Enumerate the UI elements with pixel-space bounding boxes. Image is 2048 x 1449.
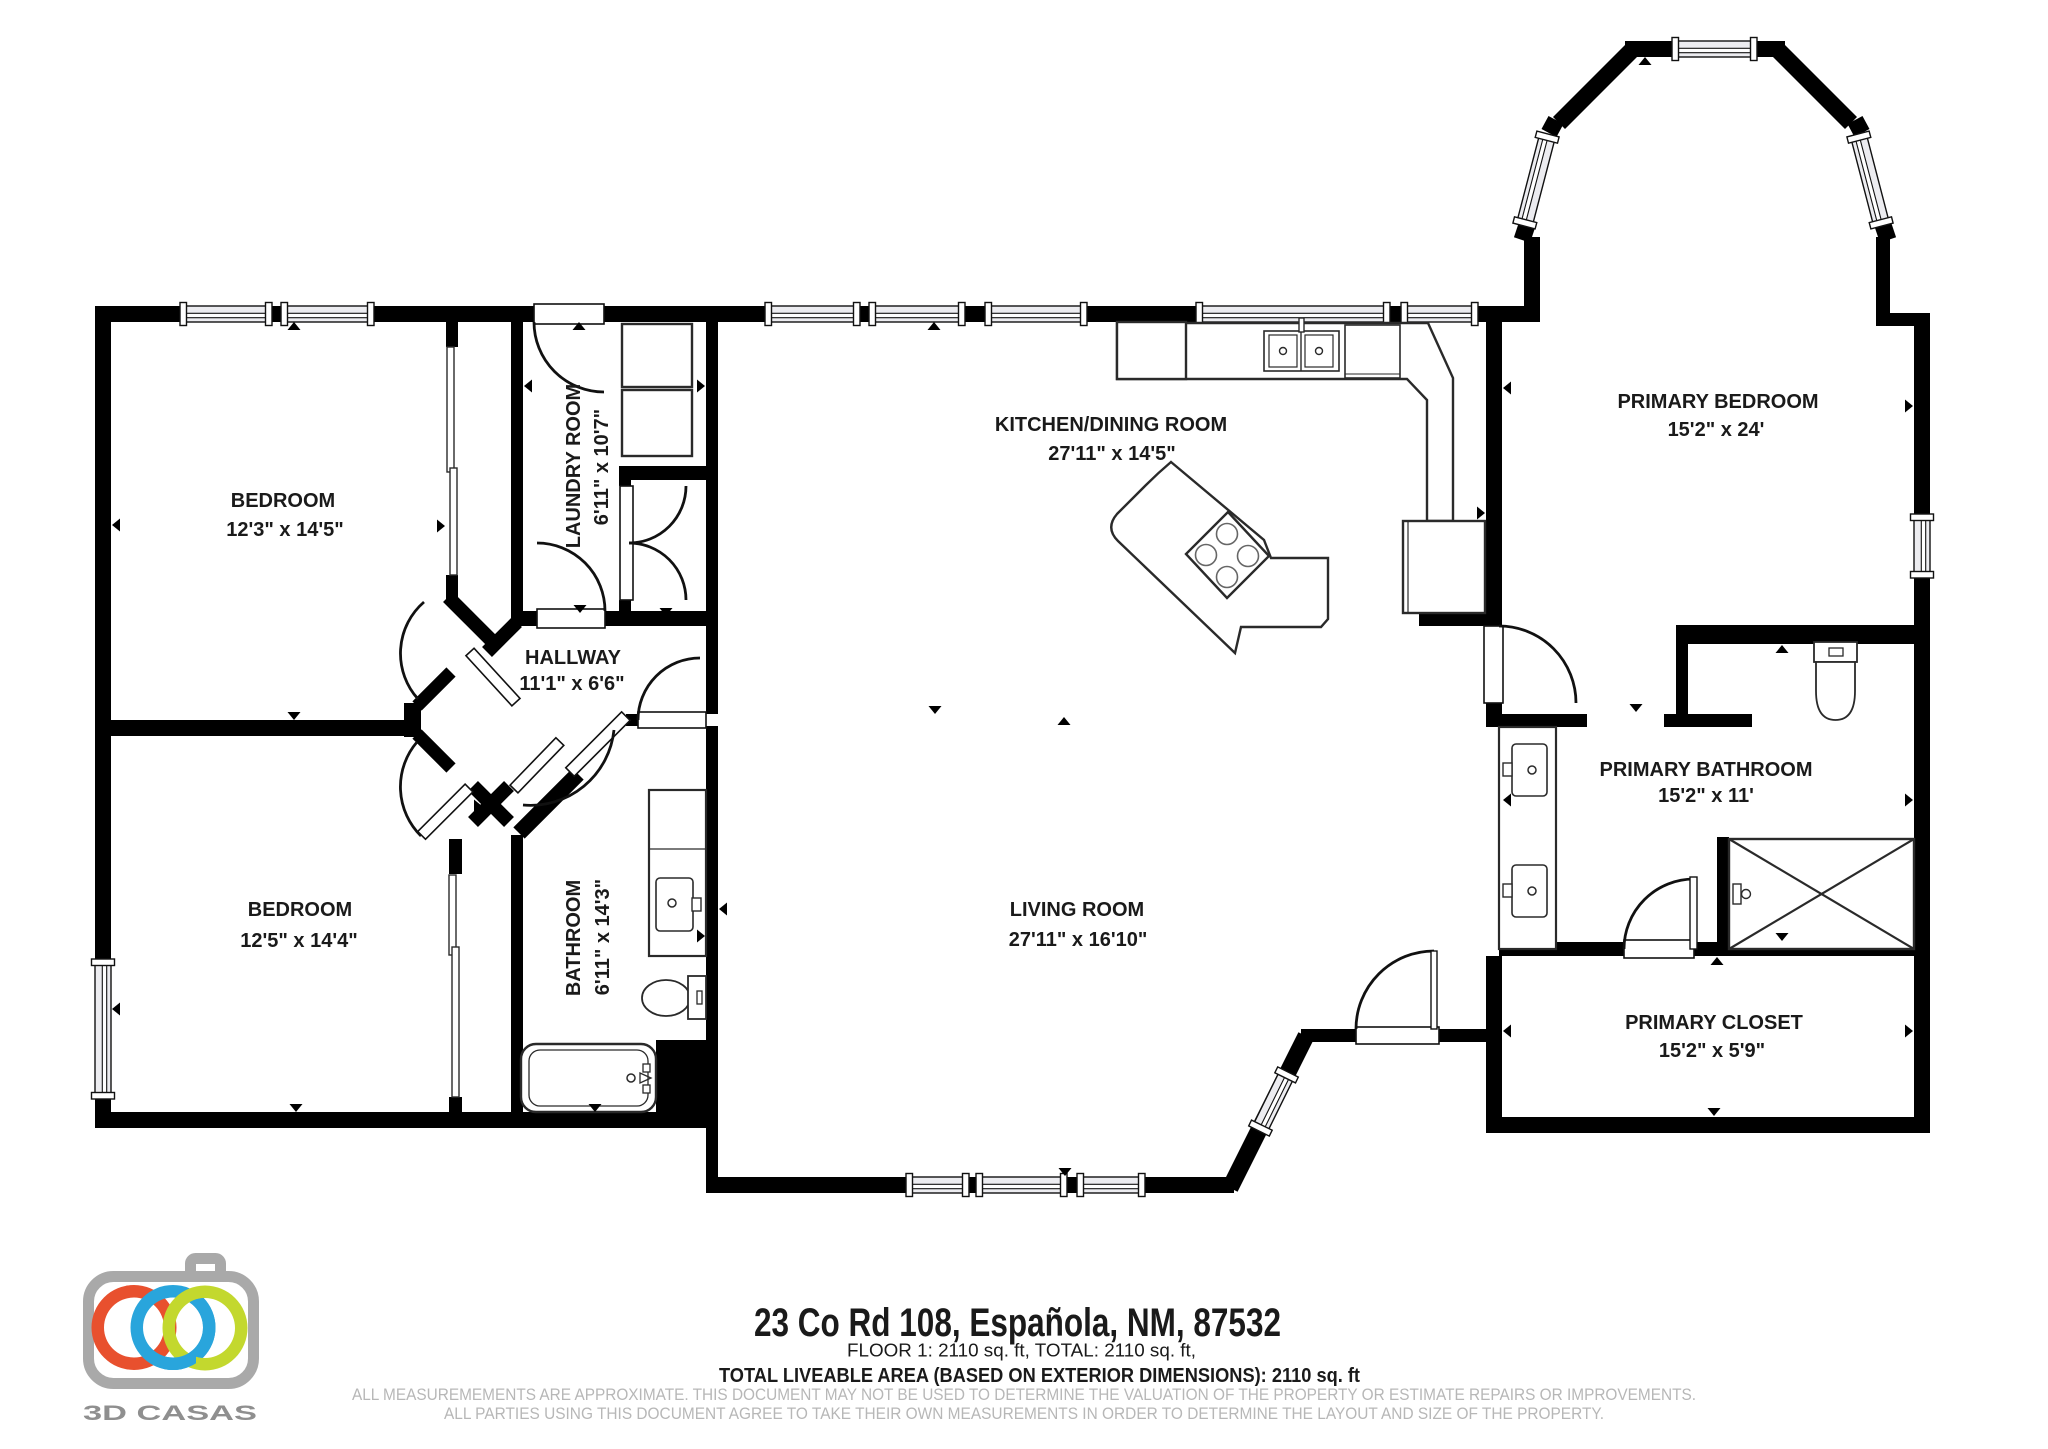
svg-text:BATHROOM: BATHROOM [563,880,585,996]
svg-text:LIVING ROOM: LIVING ROOM [1010,899,1144,921]
svg-text:27'11" x 14'5": 27'11" x 14'5" [1048,443,1175,465]
svg-text:HALLWAY: HALLWAY [525,647,622,669]
svg-text:6'11" x 14'3": 6'11" x 14'3" [592,879,614,995]
svg-text:PRIMARY BATHROOM: PRIMARY BATHROOM [1600,759,1813,781]
svg-text:23 Co Rd 108, Española, NM, 87: 23 Co Rd 108, Española, NM, 87532 [754,1301,1281,1345]
svg-text:ALL MEASUREMEMENTS ARE APPROXI: ALL MEASUREMEMENTS ARE APPROXIMATE. THIS… [352,1386,1696,1404]
svg-text:15'2" x 11': 15'2" x 11' [1658,785,1754,807]
svg-text:FLOOR 1: 2110 sq. ft, TOTAL: 2: FLOOR 1: 2110 sq. ft, TOTAL: 2110 sq. ft… [847,1340,1196,1361]
svg-text:PRIMARY CLOSET: PRIMARY CLOSET [1625,1012,1803,1034]
svg-text:12'5" x 14'4": 12'5" x 14'4" [240,930,357,952]
svg-text:BEDROOM: BEDROOM [231,490,335,512]
svg-text:LAUNDRY ROOM: LAUNDRY ROOM [563,384,585,548]
svg-text:27'11" x 16'10": 27'11" x 16'10" [1009,929,1148,951]
svg-text:TOTAL LIVEABLE AREA (BASED ON: TOTAL LIVEABLE AREA (BASED ON EXTERIOR D… [719,1365,1360,1387]
svg-text:3D CASAS: 3D CASAS [83,1402,257,1425]
svg-text:15'2" x 5'9": 15'2" x 5'9" [1659,1040,1765,1062]
svg-text:PRIMARY BEDROOM: PRIMARY BEDROOM [1617,391,1818,413]
svg-text:11'1" x 6'6": 11'1" x 6'6" [519,673,624,695]
svg-text:KITCHEN/DINING ROOM: KITCHEN/DINING ROOM [995,414,1227,436]
svg-text:6'11" x 10'7": 6'11" x 10'7" [591,409,613,525]
svg-text:12'3" x 14'5": 12'3" x 14'5" [226,519,343,541]
svg-text:15'2" x 24': 15'2" x 24' [1668,419,1765,441]
svg-text:ALL PARTIES USING THIS DOCUMEN: ALL PARTIES USING THIS DOCUMENT AGREE TO… [444,1405,1604,1423]
svg-text:BEDROOM: BEDROOM [248,899,352,921]
